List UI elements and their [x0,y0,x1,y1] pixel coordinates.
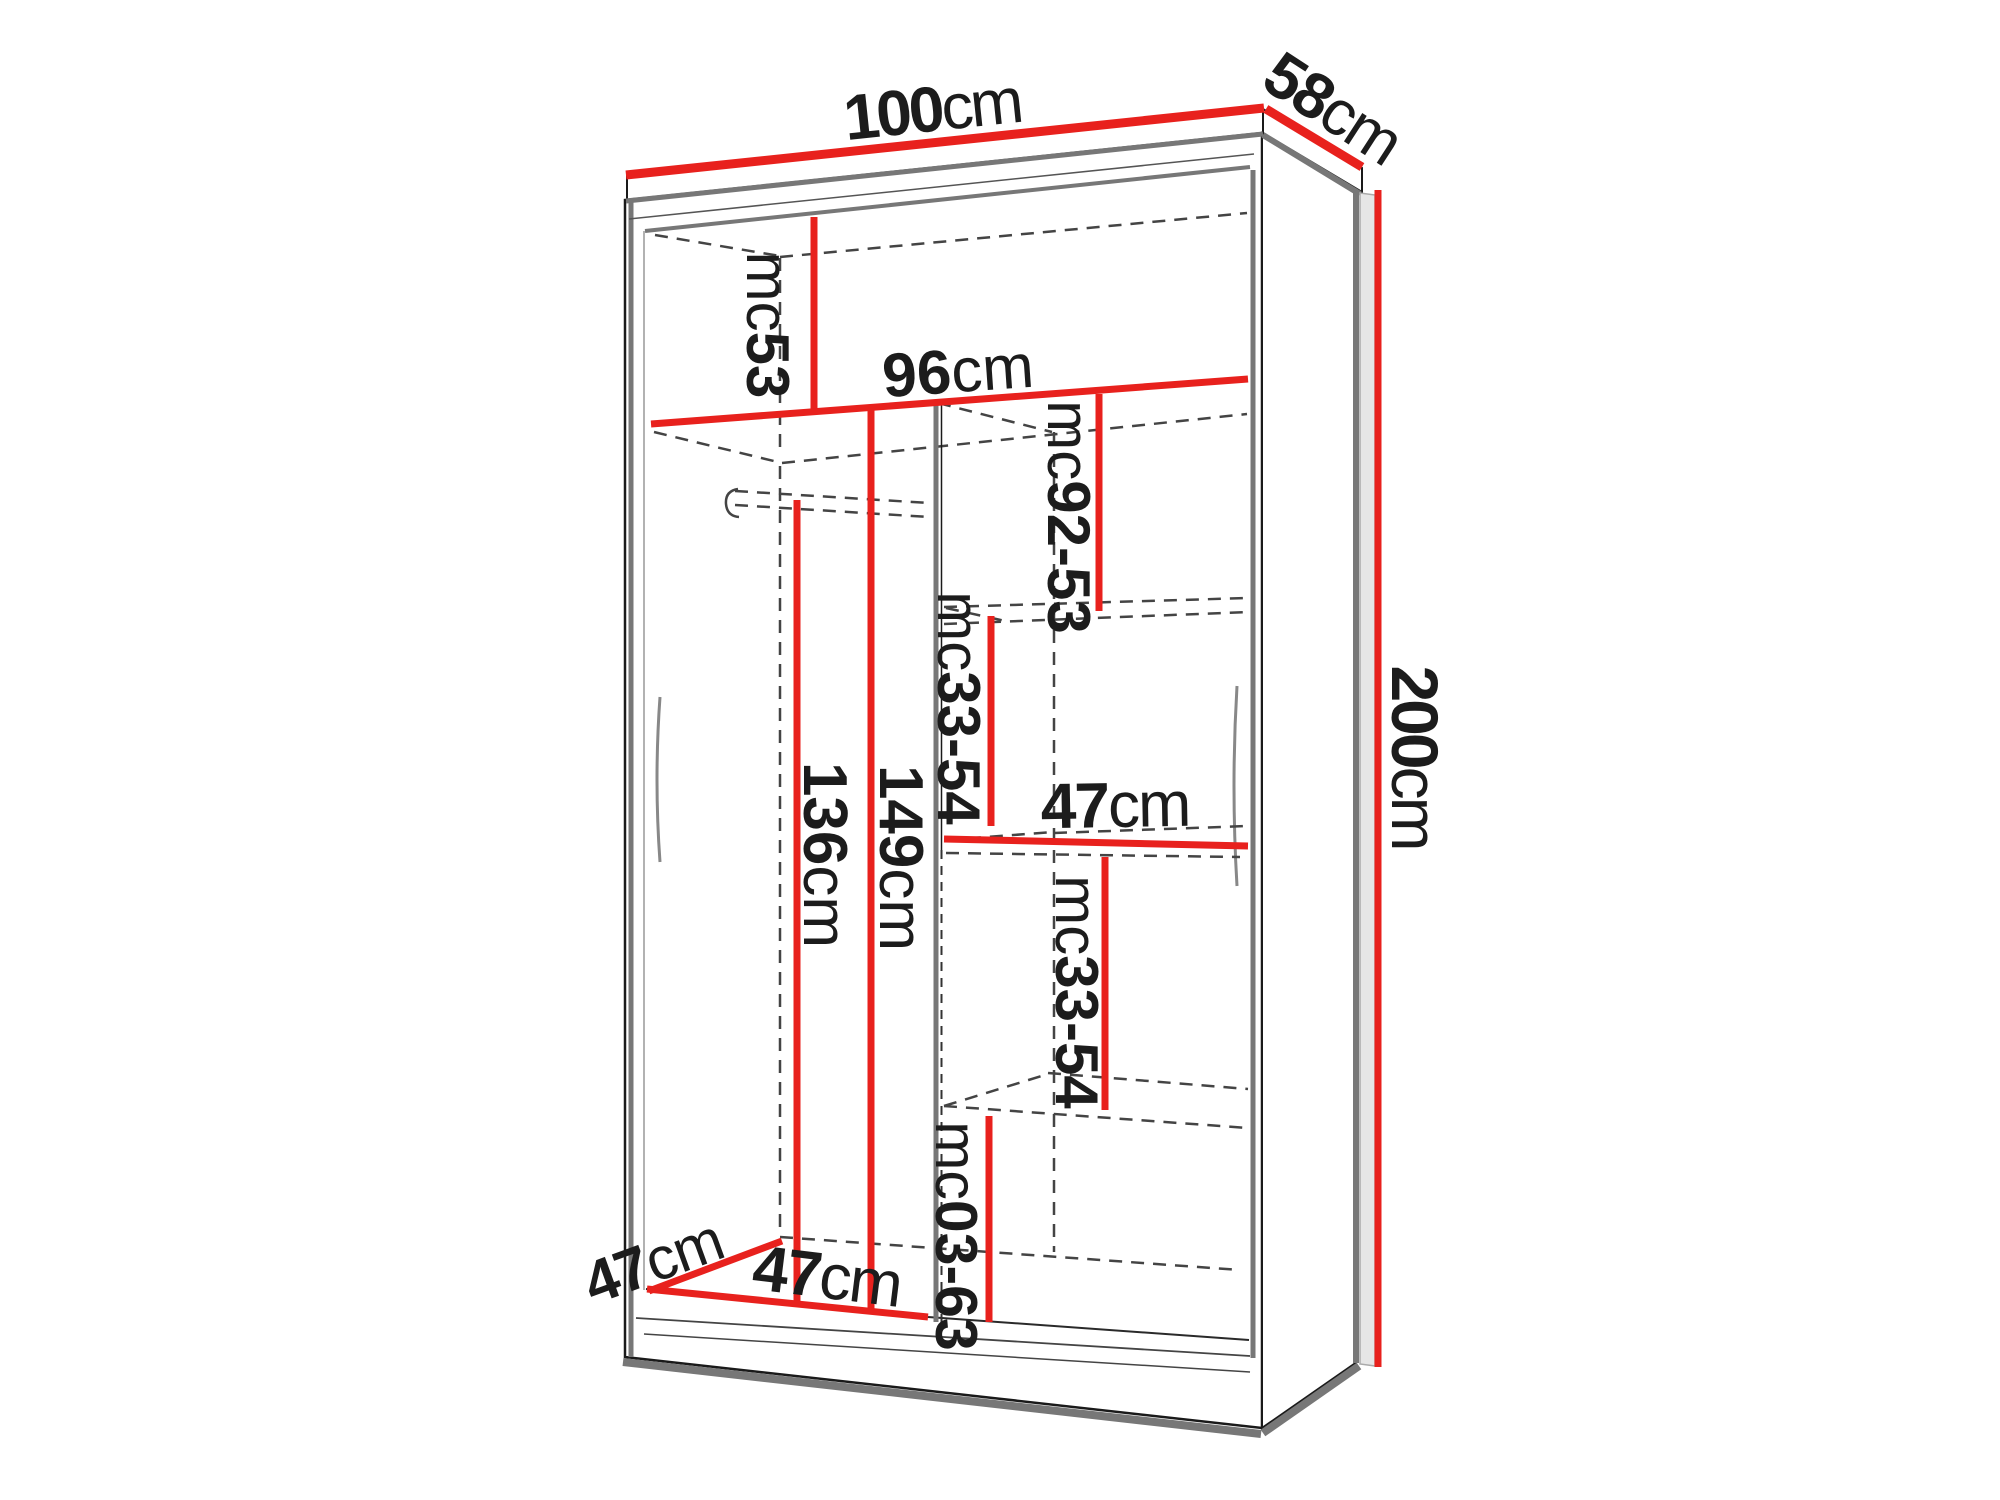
svg-text:mc53: mc53 [735,252,802,399]
svg-text:200cm: 200cm [1378,665,1452,848]
svg-text:96cm: 96cm [880,331,1036,410]
svg-text:mc92-53: mc92-53 [1036,400,1103,633]
svg-text:mc03-63: mc03-63 [923,1121,989,1351]
svg-text:149cm: 149cm [867,765,936,951]
svg-text:mc33-54: mc33-54 [1044,875,1111,1109]
svg-text:136cm: 136cm [791,762,860,948]
svg-text:47cm: 47cm [1040,768,1190,843]
